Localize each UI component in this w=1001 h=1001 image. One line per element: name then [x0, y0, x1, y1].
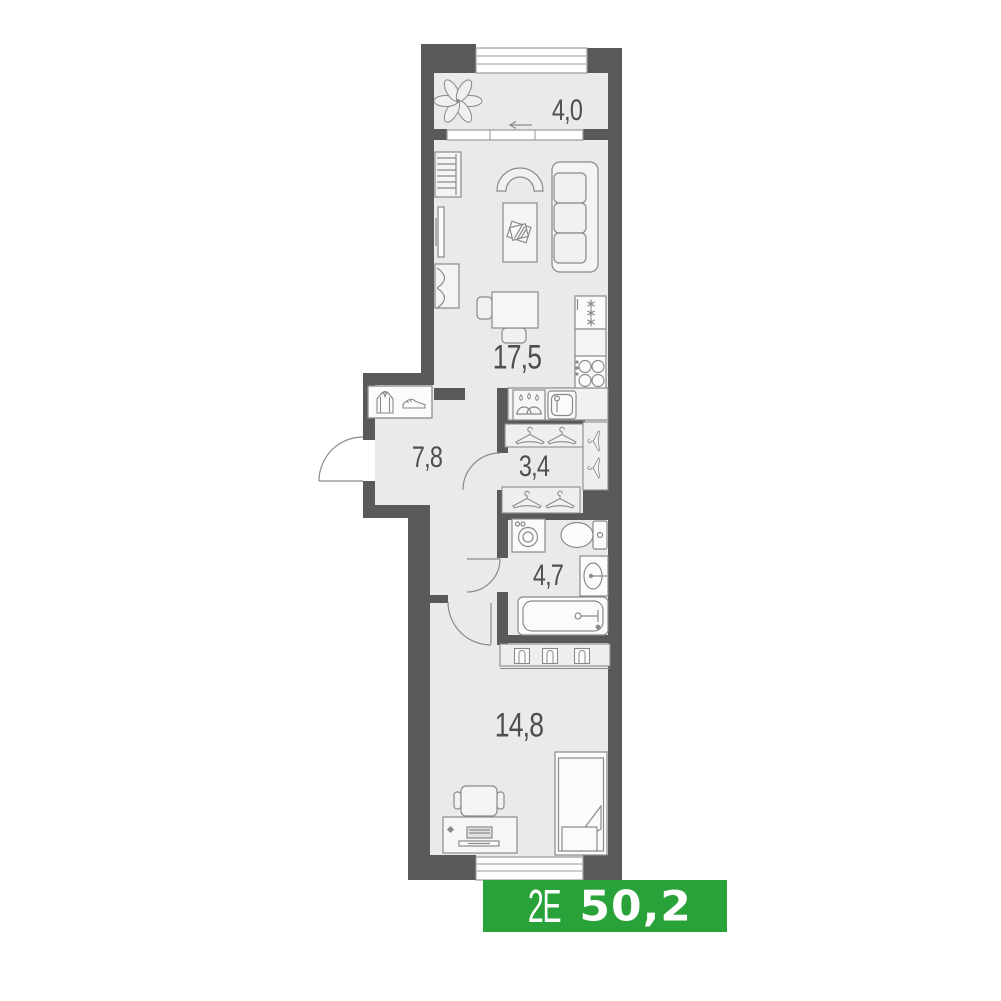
coffee-table-icon [503, 203, 537, 262]
wardrobe-area-label: 3,4 [519, 450, 549, 484]
living-kitchen-area-label: 17,5 [493, 339, 542, 378]
bedroom-window [476, 857, 583, 880]
balcony-window [476, 48, 587, 73]
total-area-badge: 2Е 50,2 [483, 880, 727, 932]
stove-icon [575, 356, 606, 390]
closet-row [500, 644, 610, 669]
floorplan-canvas: 4,0 17,5 7,8 3,4 4,7 14,8 2Е 50,2 [0, 0, 1001, 1001]
bathtub-icon [518, 597, 608, 635]
total-area-label: 50,2 [579, 882, 692, 931]
coat-rack-icon [368, 386, 432, 418]
layout-code-label: 2Е [528, 879, 560, 933]
fridge-icon [575, 296, 606, 329]
dishwasher-icon [513, 390, 545, 420]
entry-door-arc [319, 437, 363, 481]
bedroom-area-label: 14,8 [495, 707, 544, 746]
desk-chair-icon [454, 786, 504, 816]
floor-plan-svg [0, 0, 1001, 1001]
bathroom-area-label: 4,7 [533, 559, 563, 593]
balcony-area-label: 4,0 [552, 94, 582, 128]
washing-machine-icon [512, 519, 545, 552]
bookshelf-icon [435, 152, 461, 197]
bed-icon [555, 752, 607, 855]
kitchen-sink-icon [548, 391, 576, 419]
desk-icon [443, 817, 517, 853]
counter-row [508, 388, 608, 420]
kitchen-counter [575, 329, 606, 357]
hallway-furniture [368, 386, 432, 418]
cabinet-icon [435, 264, 459, 308]
sofa-icon [552, 162, 598, 272]
toilet-icon [561, 521, 607, 549]
bathroom-sink-icon [580, 556, 608, 596]
hallway-area-label: 7,8 [412, 441, 442, 475]
